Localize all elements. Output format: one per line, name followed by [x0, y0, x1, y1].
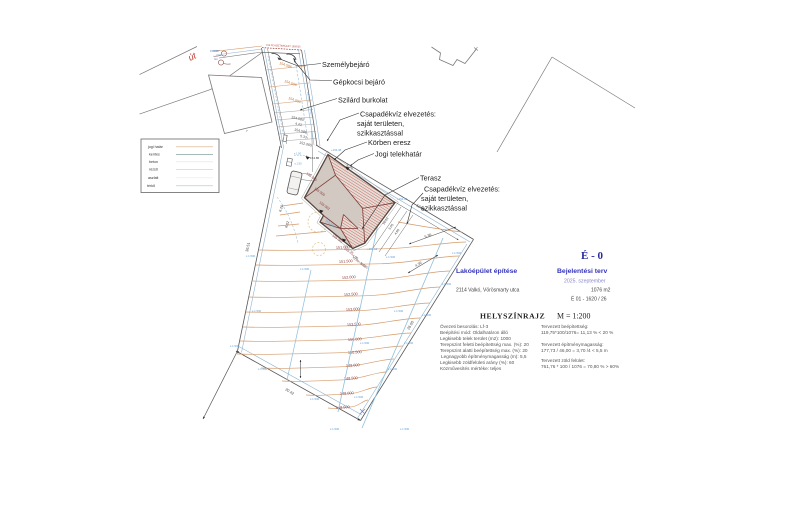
svg-text:4.43: 4.43: [295, 122, 302, 128]
svg-text:7: 7: [246, 129, 248, 133]
svg-text:jogi határ: jogi határ: [147, 145, 164, 149]
svg-text:152.000: 152.000: [342, 275, 356, 280]
svg-text:s 1.500: s 1.500: [452, 251, 462, 255]
svg-text:+154.10: +154.10: [397, 197, 408, 201]
svg-text:761,76 * 100 / 1076 = 70,80 %: 761,76 * 100 / 1076 = 70,80 % > 60%: [541, 364, 619, 369]
svg-text:É 01 - 1620 / 26: É 01 - 1620 / 26: [571, 296, 607, 303]
svg-text:3.05: 3.05: [388, 223, 395, 231]
svg-text:153.500: 153.500: [347, 322, 361, 327]
svg-text:s 1.500: s 1.500: [230, 344, 240, 348]
svg-text:177,73 / 46,00 = 3,70 /4 < 5,: 177,73 / 46,00 = 3,70 /4 < 5,5 m: [541, 348, 608, 353]
svg-text:Legkisebb zöldfelületi arány (: Legkisebb zöldfelületi arány (%): 60: [440, 360, 515, 365]
svg-text:s 1.500: s 1.500: [246, 254, 256, 258]
svg-text:148.500: 148.500: [336, 405, 350, 410]
svg-text:154.000: 154.000: [288, 96, 302, 104]
svg-text:154.86: 154.86: [310, 156, 320, 160]
svg-text:rézsű: rézsű: [149, 168, 158, 172]
svg-text:út: út: [187, 50, 198, 62]
svg-text:119,75*100/1076= 11,13 % < 20: 119,75*100/1076= 11,13 % < 20 %: [541, 330, 613, 335]
svg-text:Gö: Gö: [214, 57, 218, 61]
svg-text:s 1.500: s 1.500: [442, 282, 452, 286]
svg-text:5.33: 5.33: [300, 134, 307, 140]
svg-text:s 1.500: s 1.500: [422, 313, 432, 317]
svg-text:Legnagyobb építménymagasság (m: Legnagyobb építménymagasság (m): 5,5: [441, 354, 527, 359]
svg-text:Terasz: Terasz: [420, 174, 442, 183]
svg-text:s 1.500: s 1.500: [404, 341, 414, 345]
svg-text:Szilárd burkolat: Szilárd burkolat: [338, 96, 388, 105]
svg-text:s 1.500: s 1.500: [386, 255, 396, 259]
svg-text:Beépítési mód: Oldalhatáron ál: Beépítési mód: Oldalhatáron álló: [440, 330, 508, 335]
svg-text:Lakóépület építése: Lakóépület építése: [456, 268, 517, 275]
svg-text:s 1.500: s 1.500: [388, 367, 398, 371]
svg-text:Terepszint feletti beépítettsé: Terepszint feletti beépítettség max. (%)…: [440, 342, 529, 347]
svg-text:saját területen,: saját területen,: [357, 119, 404, 128]
svg-text:térkő: térkő: [147, 184, 155, 188]
svg-text:s 1.50: s 1.50: [294, 152, 302, 156]
svg-text:20.42: 20.42: [284, 387, 294, 395]
svg-text:M = 1:200: M = 1:200: [557, 312, 590, 321]
svg-text:Személybejáró: Személybejáró: [322, 60, 370, 69]
svg-text:2025. szeptember: 2025. szeptember: [564, 279, 606, 285]
svg-text:s 1.50: s 1.50: [295, 162, 303, 166]
svg-text:Bejelentési terv: Bejelentési terv: [557, 268, 607, 275]
svg-text:s 1.500: s 1.500: [330, 427, 340, 431]
svg-text:Gépkocsi bejáró: Gépkocsi bejáró: [333, 78, 385, 87]
svg-text:HELYSZÍNRAJZ: HELYSZÍNRAJZ: [480, 311, 545, 321]
svg-text:36.51: 36.51: [245, 242, 251, 252]
svg-text:Tervezett építménymagasság:: Tervezett építménymagasság:: [541, 342, 604, 347]
svg-text:Körben eresz: Körben eresz: [368, 138, 411, 147]
svg-text:s 1.500: s 1.500: [394, 309, 404, 313]
svg-text:beton: beton: [149, 160, 158, 164]
svg-text:Csapadékvíz elvezetés:: Csapadékvíz elvezetés:: [424, 185, 500, 194]
svg-text:Tervezett beépítettség:: Tervezett beépítettség:: [541, 324, 588, 329]
svg-text:Tervezett zöld felület:: Tervezett zöld felület:: [541, 358, 585, 363]
svg-text:+154.12: +154.12: [367, 247, 378, 251]
svg-text:+154.38: +154.38: [331, 148, 342, 152]
svg-text:szikkasztással: szikkasztással: [421, 204, 467, 213]
svg-text:s 1.500: s 1.500: [252, 309, 262, 313]
svg-text:Csapadékvíz elvezetés:: Csapadékvíz elvezetés:: [360, 110, 436, 119]
svg-text:152.065: 152.065: [299, 141, 313, 148]
svg-text:s 1.500: s 1.500: [300, 267, 310, 271]
svg-text:154.006: 154.006: [284, 79, 298, 87]
svg-text:1076 m2: 1076 m2: [591, 288, 611, 294]
svg-text:s 1.500: s 1.500: [310, 397, 320, 401]
svg-text:aszfalt: aszfalt: [148, 176, 158, 180]
svg-text:s 1.500: s 1.500: [258, 367, 268, 371]
svg-text:É - 0: É - 0: [581, 250, 604, 262]
svg-text:6.20: 6.20: [278, 205, 284, 213]
svg-text:s 1.500: s 1.500: [354, 395, 364, 399]
svg-text:saját területen,: saját területen,: [421, 194, 468, 203]
svg-text:Legkisebb telek terület (m2):: Legkisebb telek terület (m2): 1000: [440, 336, 511, 341]
svg-text:6.02: 6.02: [284, 221, 290, 229]
svg-text:5.36: 5.36: [424, 233, 432, 239]
svg-text:2114 Valkó, Vörösmarty utca: 2114 Valkó, Vörösmarty utca: [456, 288, 520, 294]
svg-text:kerítés: kerítés: [149, 153, 160, 157]
svg-text:s 1.500: s 1.500: [360, 341, 370, 345]
svg-text:Közművesítés mértéke: teljes: Közművesítés mértéke: teljes: [440, 366, 502, 371]
svg-text:szikkasztással: szikkasztással: [357, 129, 403, 138]
svg-text:151.500: 151.500: [339, 259, 353, 264]
svg-text:153.000: 153.000: [346, 307, 360, 312]
svg-text:Övezeti besorolás: Lf-3: Övezeti besorolás: Lf-3: [440, 323, 489, 329]
svg-text:s 1.500: s 1.500: [400, 427, 410, 431]
svg-text:150.500: 150.500: [348, 350, 362, 355]
svg-text:Jogi telekhatár: Jogi telekhatár: [375, 150, 422, 159]
svg-text:Terepszint alatti beépítettség: Terepszint alatti beépítettség max. (%):…: [440, 348, 528, 353]
